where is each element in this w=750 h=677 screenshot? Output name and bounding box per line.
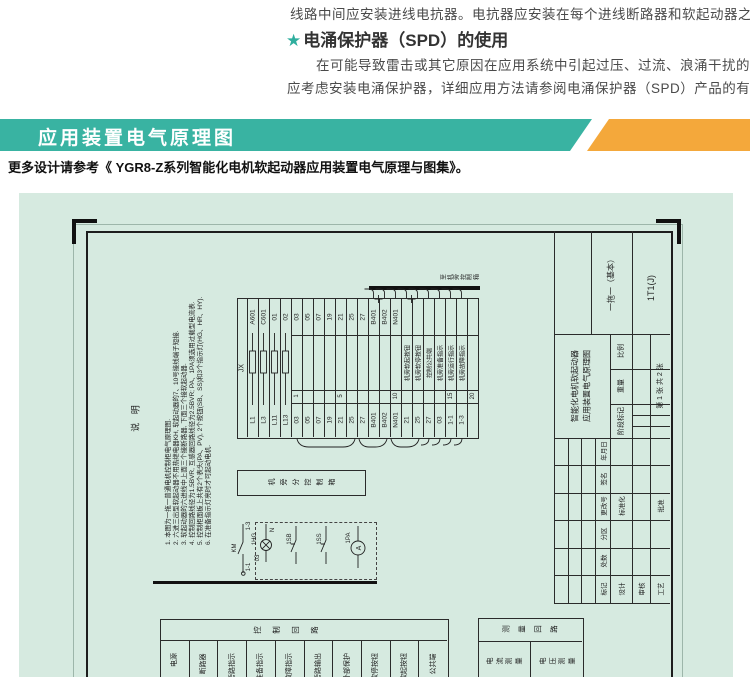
circuit-symbols-overlay: A (19, 193, 733, 677)
symbol-path (420, 289, 429, 298)
section-banner: 应用装置电气原理图 (0, 119, 750, 151)
symbol-path (398, 289, 407, 298)
symbol-path (442, 289, 451, 298)
symbol-path (408, 295, 416, 303)
fuse-icon (283, 351, 289, 373)
symbol-path (453, 289, 462, 298)
fuse-icon (250, 351, 256, 373)
symbol-path (376, 289, 385, 298)
symbol-path (431, 289, 440, 298)
symbol-path (238, 524, 243, 573)
symbol-path (421, 438, 462, 445)
star-bullet-icon: ★ (286, 31, 301, 50)
banner-orange-shape (609, 119, 750, 151)
schematic-scan-panel: JX A601L1C601L301L1102L13030310505070719… (19, 193, 733, 677)
spd-paragraph-line1: 在可能导致雷击或其它原因在应用系统中引起过压、过流、浪涌干扰的场所 (316, 54, 750, 74)
intro-line: 线路中间应安装进线电抗器。电抗器应安装在每个进线断路器和软起动器之间。 (290, 3, 750, 23)
spd-heading-text: 电涌保护器（SPD）的使用 (303, 31, 508, 50)
fuse-icon (272, 351, 278, 373)
symbol-path (391, 439, 419, 447)
section-title: 应用装置电气原理图 (38, 123, 236, 150)
symbol-path (359, 439, 387, 447)
symbol-path (297, 439, 355, 447)
symbol-path (387, 289, 396, 298)
symbol-path (321, 526, 326, 564)
symbol-path (291, 526, 296, 564)
fuse-icon (261, 351, 267, 373)
symbol-path (262, 541, 270, 549)
ammeter-letter: A (356, 545, 363, 550)
symbol-path (409, 289, 418, 298)
reference-caption: 更多设计请参考《 YGR8-Z系列智能化电机软起动器应用装置电气原理与图集》。 (8, 157, 469, 176)
spd-heading: ★电涌保护器（SPD）的使用 (286, 26, 508, 51)
banner-orange-slant (587, 119, 609, 151)
symbol-path (365, 289, 374, 298)
spd-paragraph-line2: 应考虑安装电涌保护器，详细应用方法请参阅电涌保护器（SPD）产品的有关资料。 (287, 77, 750, 97)
symbol-path (375, 295, 383, 303)
